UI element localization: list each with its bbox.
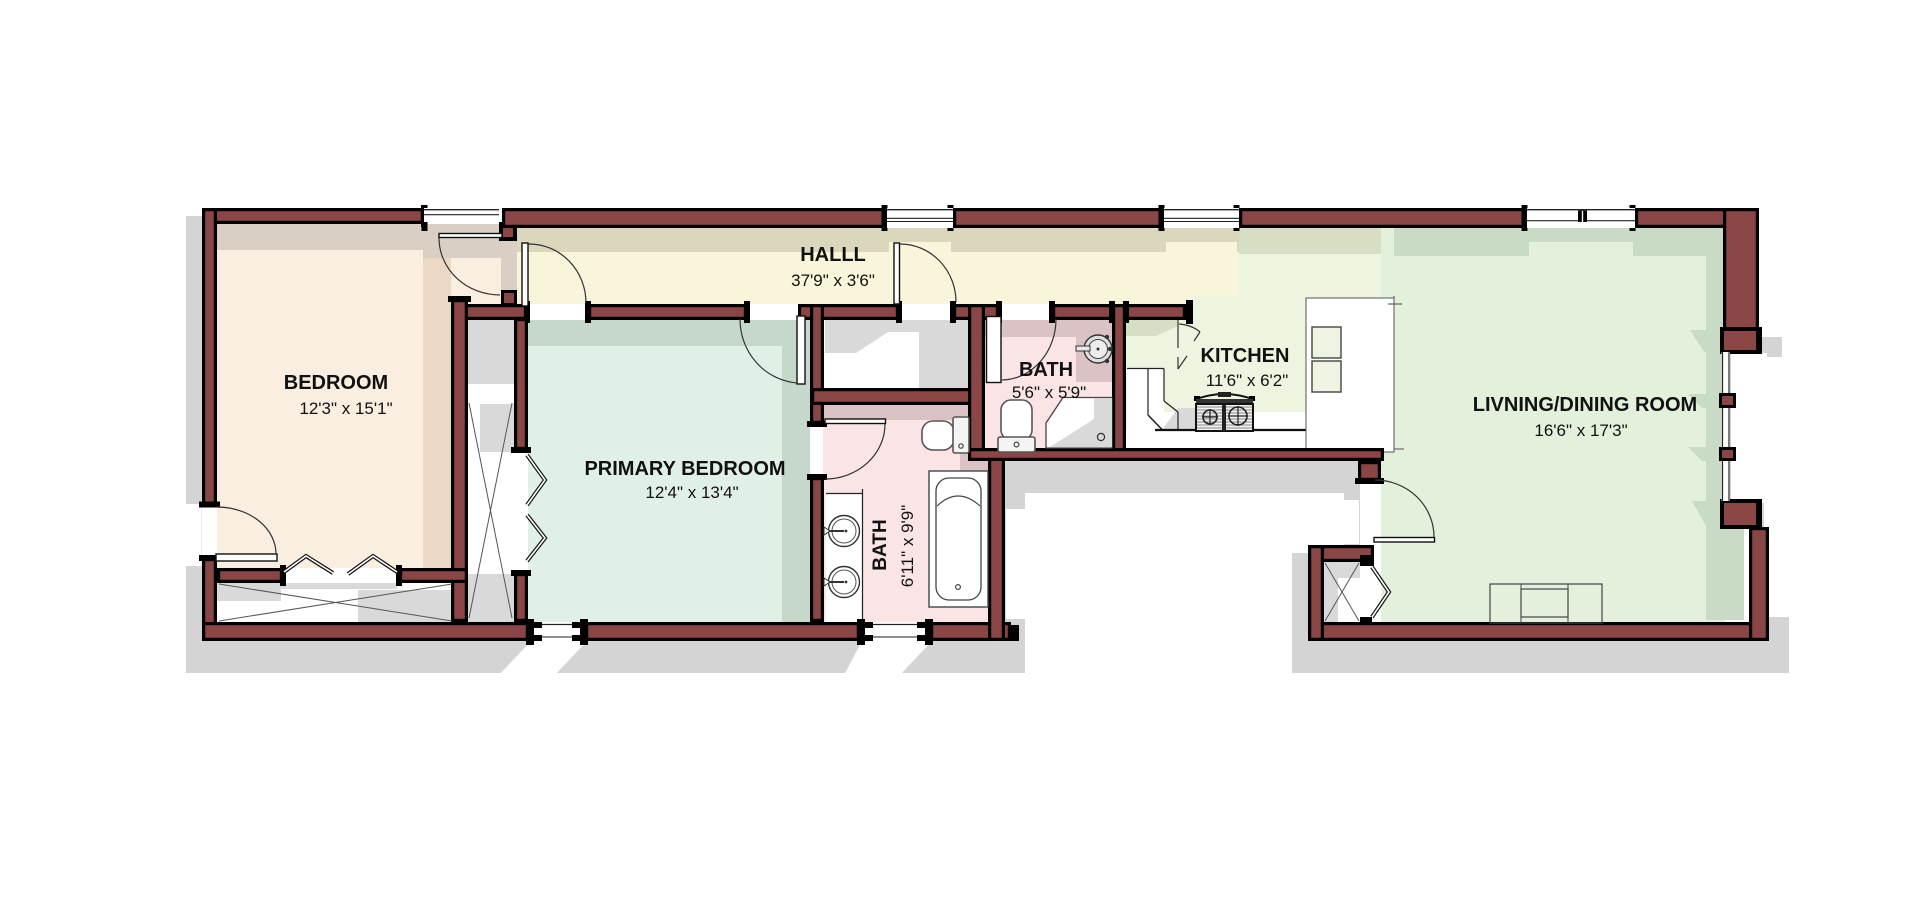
svg-text:KITCHEN: KITCHEN bbox=[1201, 345, 1290, 367]
svg-text:BATH: BATH bbox=[870, 519, 891, 570]
svg-text:LIVNING/DINING ROOM: LIVNING/DINING ROOM bbox=[1473, 394, 1697, 416]
svg-text:12'4" x 13'4": 12'4" x 13'4" bbox=[645, 483, 738, 502]
svg-text:PRIMARY BEDROOM: PRIMARY BEDROOM bbox=[584, 458, 785, 480]
svg-text:6'11" x 9'9": 6'11" x 9'9" bbox=[898, 505, 917, 588]
svg-text:12'3" x 15'1": 12'3" x 15'1" bbox=[299, 399, 392, 418]
svg-text:BATH: BATH bbox=[1019, 359, 1073, 381]
svg-text:BEDROOM: BEDROOM bbox=[284, 372, 388, 394]
svg-text:HALLL: HALLL bbox=[800, 244, 866, 266]
svg-text:11'6" x 6'2": 11'6" x 6'2" bbox=[1206, 371, 1289, 390]
svg-text:16'6" x 17'3": 16'6" x 17'3" bbox=[1534, 421, 1627, 440]
svg-text:37'9" x 3'6": 37'9" x 3'6" bbox=[791, 271, 875, 290]
svg-text:5'6" x 5'9": 5'6" x 5'9" bbox=[1012, 383, 1086, 402]
